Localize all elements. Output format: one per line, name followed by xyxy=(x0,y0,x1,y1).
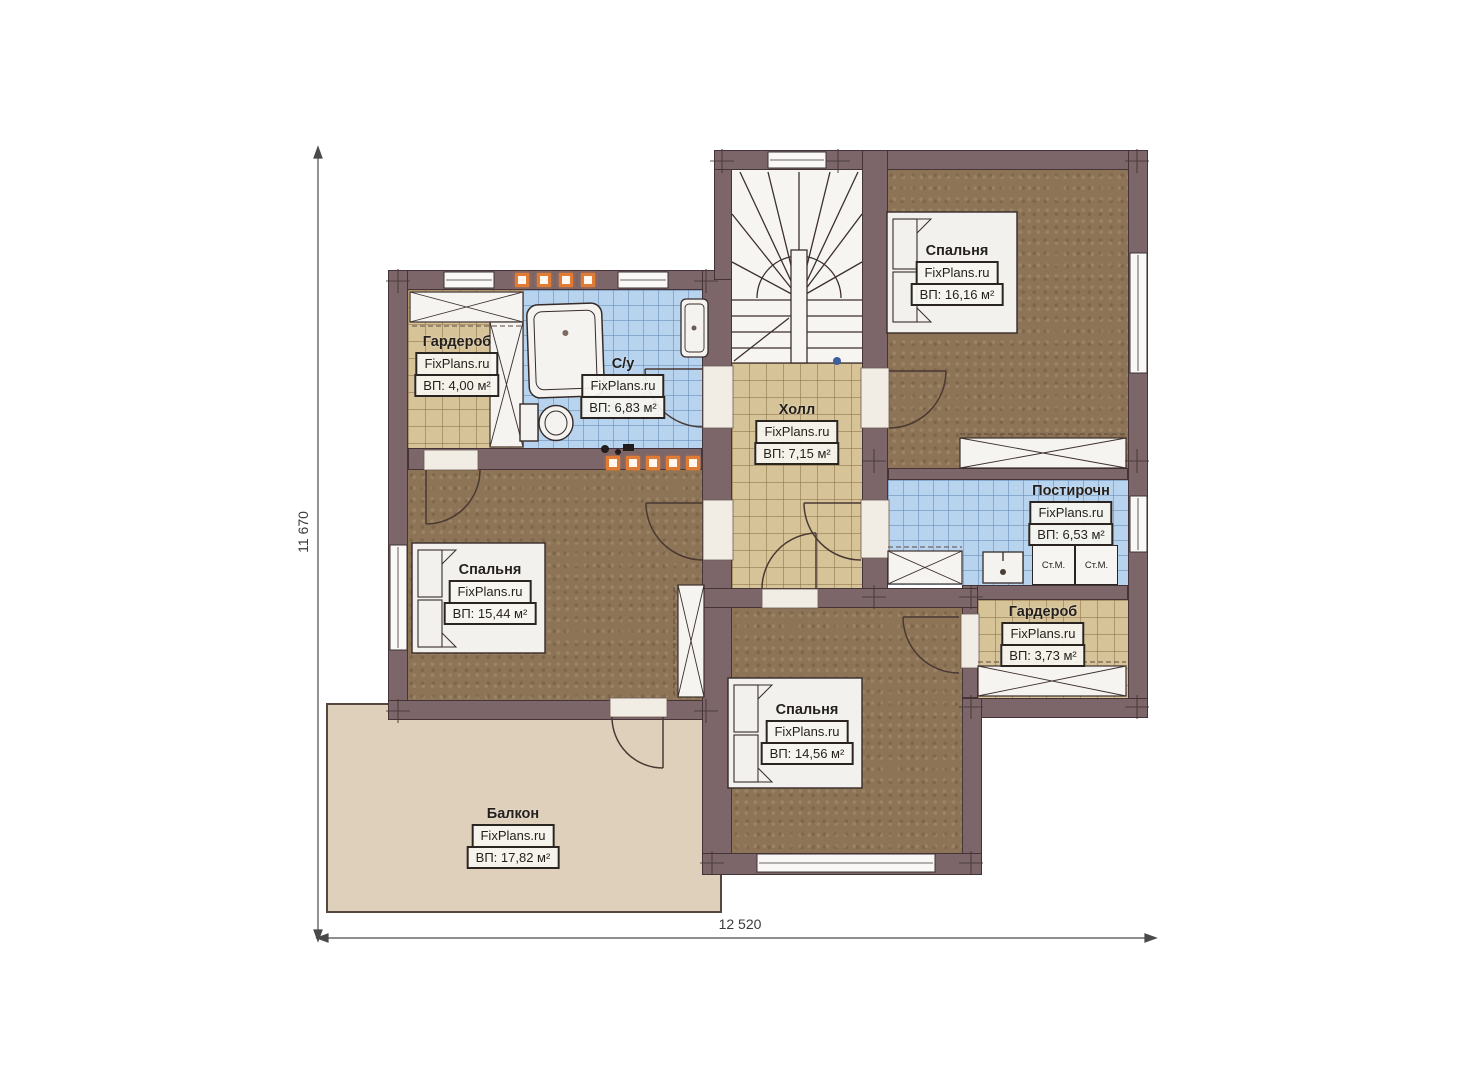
brand-label: FixPlans.ru xyxy=(415,352,498,376)
room-area: ВП: 17,82 м² xyxy=(467,846,560,870)
room-area: ВП: 3,73 м² xyxy=(1000,644,1085,668)
room-name: Спальня xyxy=(776,702,839,718)
room-area: ВП: 7,15 м² xyxy=(754,442,839,466)
glass-block xyxy=(646,456,660,470)
room-area: ВП: 15,44 м² xyxy=(444,602,537,626)
room-label-balcony: Балкон FixPlans.ru ВП: 17,82 м² xyxy=(467,806,560,869)
room-label-wardrobe-top-left: Гардероб FixPlans.ru ВП: 4,00 м² xyxy=(414,334,499,397)
room-label-bedroom-left: Спальня FixPlans.ru ВП: 15,44 м² xyxy=(444,562,537,625)
glass-block xyxy=(537,273,551,287)
wall xyxy=(962,698,982,875)
wall xyxy=(702,270,732,875)
room-label-hall: Холл FixPlans.ru ВП: 7,15 м² xyxy=(754,402,839,465)
brand-label: FixPlans.ru xyxy=(471,824,554,848)
glass-block xyxy=(606,456,620,470)
glass-block xyxy=(515,273,529,287)
room-label-bedroom-bottom: Спальня FixPlans.ru ВП: 14,56 м² xyxy=(761,702,854,765)
glass-block xyxy=(559,273,573,287)
room-name: Гардероб xyxy=(423,334,492,350)
room-label-bedroom-top-right: Спальня FixPlans.ru ВП: 16,16 м² xyxy=(911,243,1004,306)
brand-label: FixPlans.ru xyxy=(448,580,531,604)
glass-block xyxy=(666,456,680,470)
brand-label: FixPlans.ru xyxy=(1001,622,1084,646)
brand-label: FixPlans.ru xyxy=(755,420,838,444)
room-area: ВП: 4,00 м² xyxy=(414,374,499,398)
wall xyxy=(888,468,1128,480)
hall-floor xyxy=(732,363,862,588)
room-name: Спальня xyxy=(459,562,522,578)
wall xyxy=(714,150,1148,170)
room-name: Холл xyxy=(779,402,815,418)
bedroom-top-right-floor xyxy=(888,170,1128,468)
room-name: Спальня xyxy=(926,243,989,259)
room-name: Постирочн xyxy=(1032,483,1110,499)
wall xyxy=(1128,150,1148,718)
glass-block xyxy=(686,456,700,470)
wall xyxy=(388,700,714,720)
floor-plan: Ст.М. Ст.М. Гардероб FixPlans.ru ВП: 4,0… xyxy=(0,0,1473,1080)
brand-label: FixPlans.ru xyxy=(915,261,998,285)
wall xyxy=(962,585,1128,600)
wall xyxy=(388,270,408,720)
stairwell-floor xyxy=(732,170,862,363)
room-label-wardrobe-right: Гардероб FixPlans.ru ВП: 3,73 м² xyxy=(1000,604,1085,667)
glass-block xyxy=(626,456,640,470)
brand-label: FixPlans.ru xyxy=(765,720,848,744)
washing-machine: Ст.М. xyxy=(1032,545,1075,585)
glass-block xyxy=(581,273,595,287)
room-area: ВП: 6,83 м² xyxy=(580,396,665,420)
dimension-vertical: 11 670 xyxy=(295,511,311,553)
washing-machine: Ст.М. xyxy=(1075,545,1118,585)
brand-label: FixPlans.ru xyxy=(1029,501,1112,525)
room-area: ВП: 6,53 м² xyxy=(1028,523,1113,547)
room-area: ВП: 16,16 м² xyxy=(911,283,1004,307)
room-area: ВП: 14,56 м² xyxy=(761,742,854,766)
wall xyxy=(962,698,1148,718)
brand-label: FixPlans.ru xyxy=(581,374,664,398)
room-label-laundry: Постирочн FixPlans.ru ВП: 6,53 м² xyxy=(1028,483,1113,546)
room-label-bathroom: С/у FixPlans.ru ВП: 6,83 м² xyxy=(580,356,665,419)
wall xyxy=(862,150,888,608)
room-name: С/у xyxy=(612,356,635,372)
wall xyxy=(702,588,978,608)
wall xyxy=(388,270,714,290)
wall xyxy=(702,853,982,875)
room-name: Гардероб xyxy=(1009,604,1078,620)
room-name: Балкон xyxy=(487,806,539,822)
dimension-horizontal: 12 520 xyxy=(719,916,762,932)
